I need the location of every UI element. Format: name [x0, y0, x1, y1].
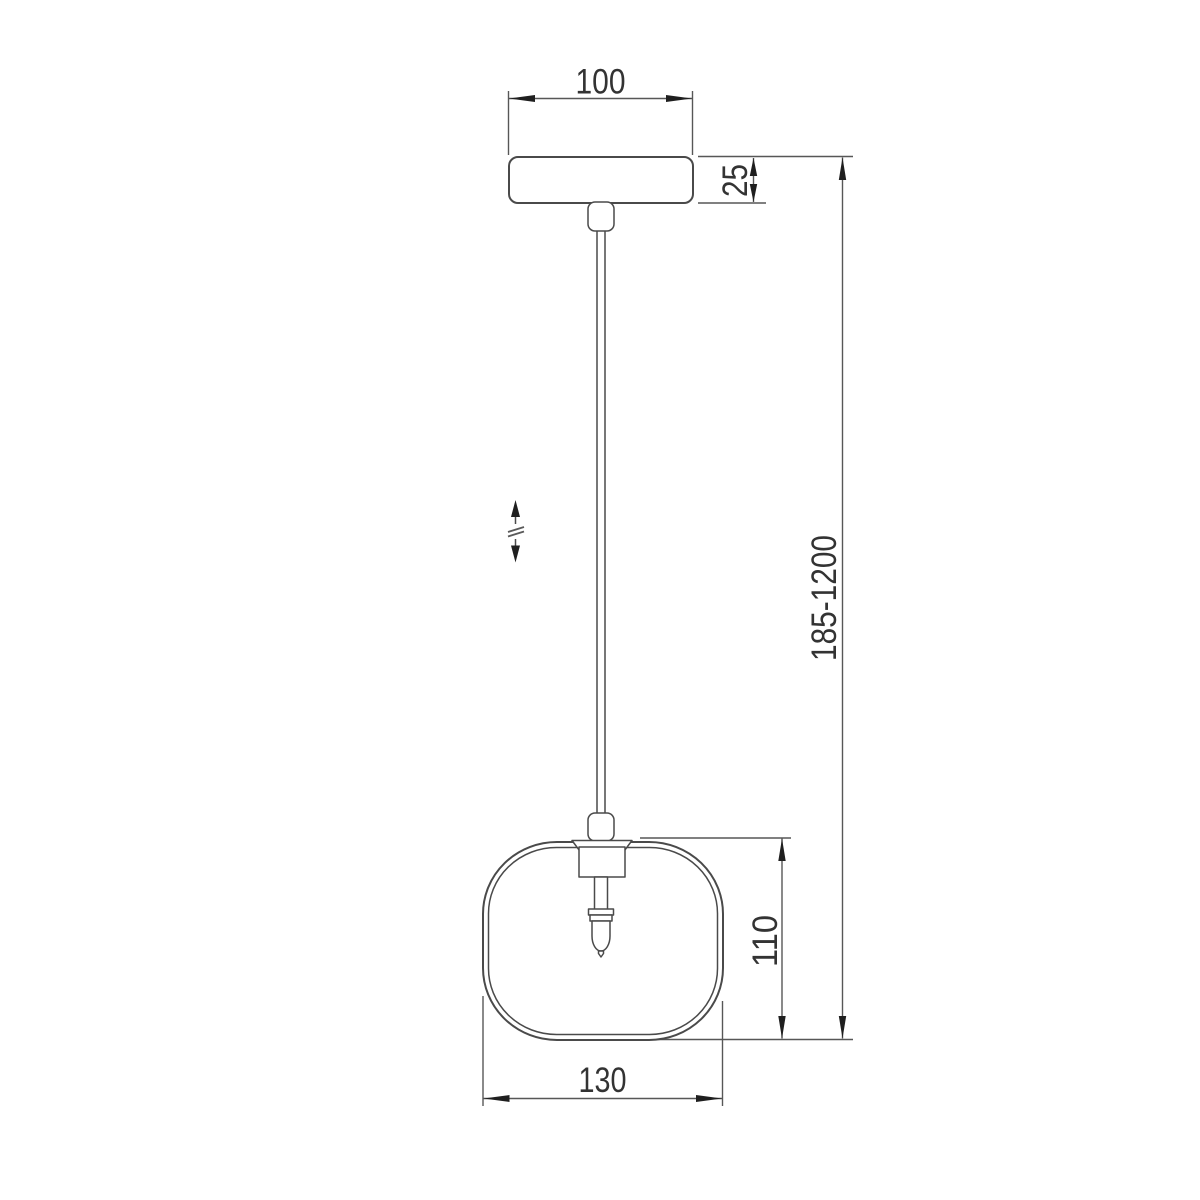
- dimension-label-shade-width: 130: [579, 1061, 627, 1100]
- pendant-lamp-dimension-drawing: 100 25 185-1200 110 130: [0, 0, 1200, 1200]
- ceiling-canopy: [509, 157, 693, 203]
- arrowhead-down-icon: [839, 1016, 846, 1039]
- break-mark: [508, 532, 524, 537]
- socket-holder: [579, 847, 625, 877]
- socket-tube: [595, 877, 608, 910]
- dimension-overall-height: 185-1200: [805, 158, 846, 1039]
- arrowhead-left-icon: [509, 95, 535, 102]
- arrowhead-right-icon: [696, 1095, 722, 1102]
- adjustable-height-icon: [508, 500, 524, 563]
- dimension-label-canopy-height: 25: [716, 164, 755, 197]
- technical-drawing-page: 100 25 185-1200 110 130: [0, 0, 1200, 1200]
- arrowhead-up-icon: [778, 839, 785, 862]
- pendant-lamp: [483, 157, 723, 1040]
- arrowhead-down-icon: [778, 1016, 785, 1039]
- dimension-label-overall-height: 185-1200: [805, 535, 844, 661]
- dimension-label-canopy-width: 100: [576, 63, 626, 102]
- cord-grip-shade: [588, 813, 614, 841]
- dimension-canopy-width: 100: [509, 63, 693, 156]
- arrow-down-icon: [511, 546, 520, 563]
- dimension-label-shade-height: 110: [746, 915, 785, 967]
- arrowhead-left-icon: [484, 1095, 510, 1102]
- break-mark: [508, 527, 524, 532]
- bulb-base-ring: [589, 909, 614, 915]
- arrowhead-up-icon: [839, 158, 846, 181]
- bulb-base-ring: [590, 915, 612, 921]
- arrowhead-right-icon: [666, 95, 692, 102]
- bulb: [592, 921, 610, 951]
- dimension-canopy-height: 25: [698, 157, 853, 204]
- arrow-up-icon: [511, 500, 520, 517]
- cord-grip-top: [588, 202, 614, 231]
